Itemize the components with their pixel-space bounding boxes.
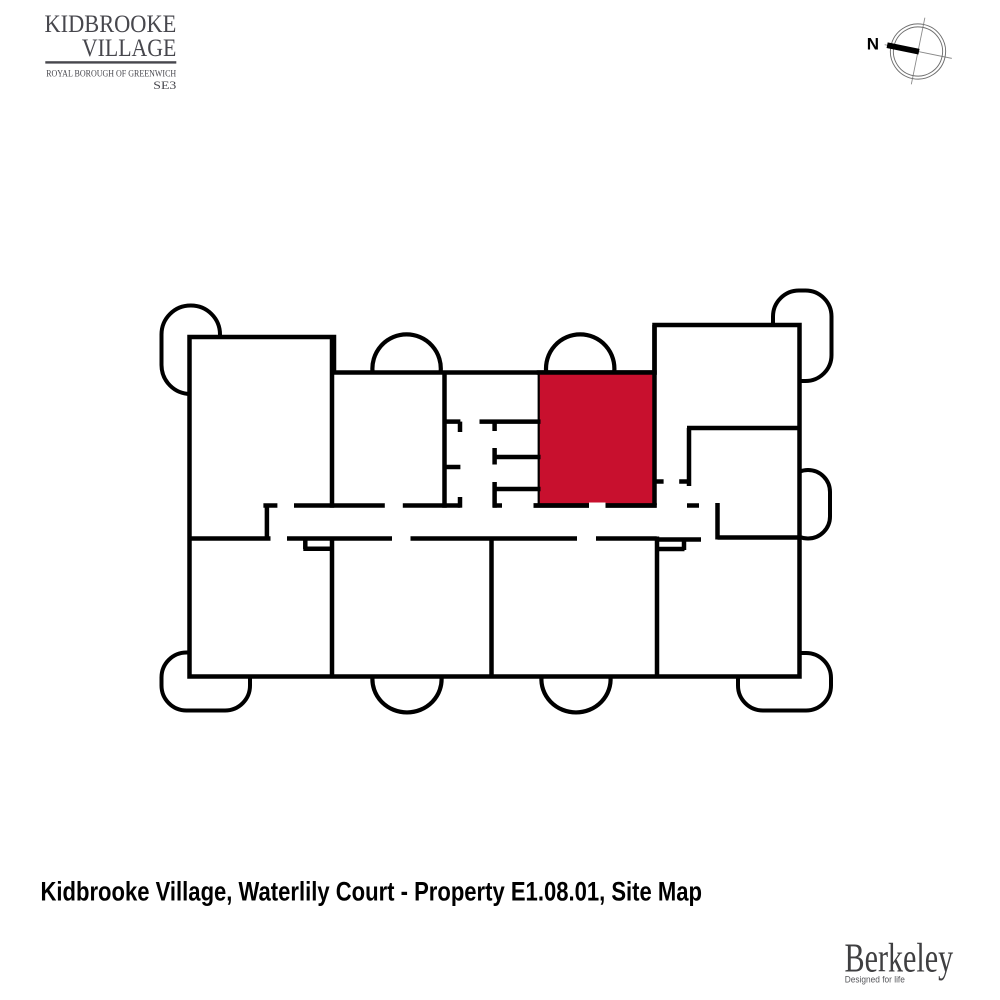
svg-text:N: N [867, 35, 879, 54]
svg-text:Kidbrooke Village, Waterlily C: Kidbrooke Village, Waterlily Court - Pro… [41, 877, 703, 907]
svg-text:ROYAL BOROUGH OF GREENWICH: ROYAL BOROUGH OF GREENWICH [46, 68, 176, 78]
svg-text:VILLAGE: VILLAGE [82, 35, 176, 62]
svg-text:SE3: SE3 [153, 80, 176, 92]
svg-text:Designed for life: Designed for life [845, 975, 905, 986]
svg-text:Berkeley: Berkeley [845, 934, 954, 980]
